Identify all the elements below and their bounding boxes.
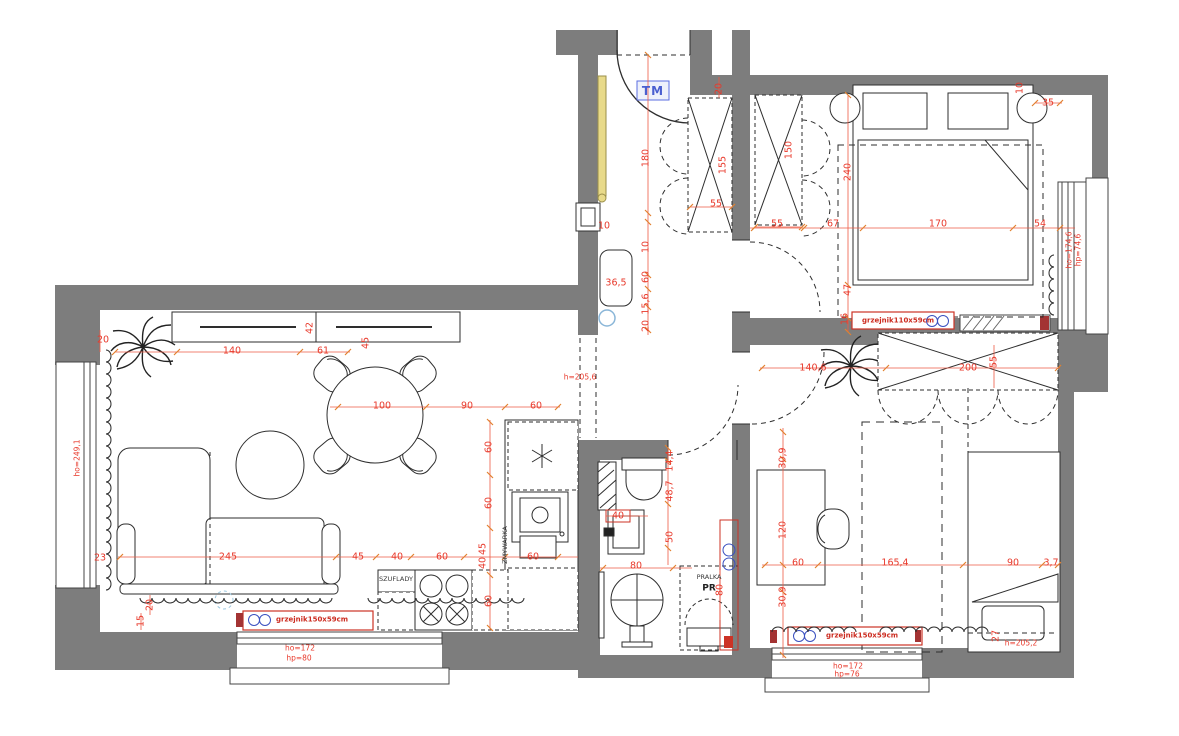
entrance-door	[617, 30, 690, 123]
hall-cabinet	[600, 250, 632, 306]
coffee-table	[236, 431, 304, 499]
window-right	[1058, 178, 1108, 334]
passage-opening	[580, 338, 596, 438]
bathroom-hatched-panel	[598, 462, 616, 510]
bedroom1-wardrobe	[755, 95, 802, 225]
bedside-lamp	[830, 93, 860, 123]
yellow-strip	[598, 76, 606, 196]
window-bottom-right	[765, 648, 929, 692]
window-left	[56, 362, 96, 588]
balcony-threshold	[960, 315, 1050, 331]
radiator-bedroom2	[770, 627, 922, 645]
radiator-bedroom1	[852, 312, 954, 329]
plant-icon	[111, 317, 175, 377]
yellow-dot	[598, 194, 606, 202]
desk-chair	[817, 509, 849, 549]
door-bathroom	[668, 385, 738, 460]
sink	[604, 510, 644, 554]
bedroom2-bed	[968, 452, 1060, 652]
floor-plan-drawing	[0, 0, 1179, 736]
planned-furniture-dashed	[862, 422, 942, 652]
electrical-box	[576, 203, 600, 231]
washbasin-pedestal	[599, 572, 663, 647]
tm-box	[637, 81, 669, 100]
door-bedroom1	[732, 240, 820, 312]
hall-wardrobe	[688, 98, 732, 232]
radiator-living	[215, 591, 373, 630]
sideboard	[172, 312, 460, 342]
bedroom1-bed	[853, 85, 1033, 285]
door-bedroom2	[732, 352, 824, 424]
drawers-cabinet	[378, 570, 415, 592]
dining-table	[309, 352, 440, 479]
wardrobe-curtain	[878, 388, 1058, 452]
blue-marker-circle	[599, 310, 615, 326]
kitchen-tall-units	[505, 420, 578, 630]
bedroom2-wardrobe	[878, 333, 1058, 390]
bedside-lamp	[1017, 93, 1047, 123]
sofa	[117, 448, 340, 594]
floor-plan: 2014061424510090602454540604540606060602…	[0, 0, 1179, 736]
toilet	[622, 458, 666, 500]
window-bottom-left	[230, 632, 449, 684]
